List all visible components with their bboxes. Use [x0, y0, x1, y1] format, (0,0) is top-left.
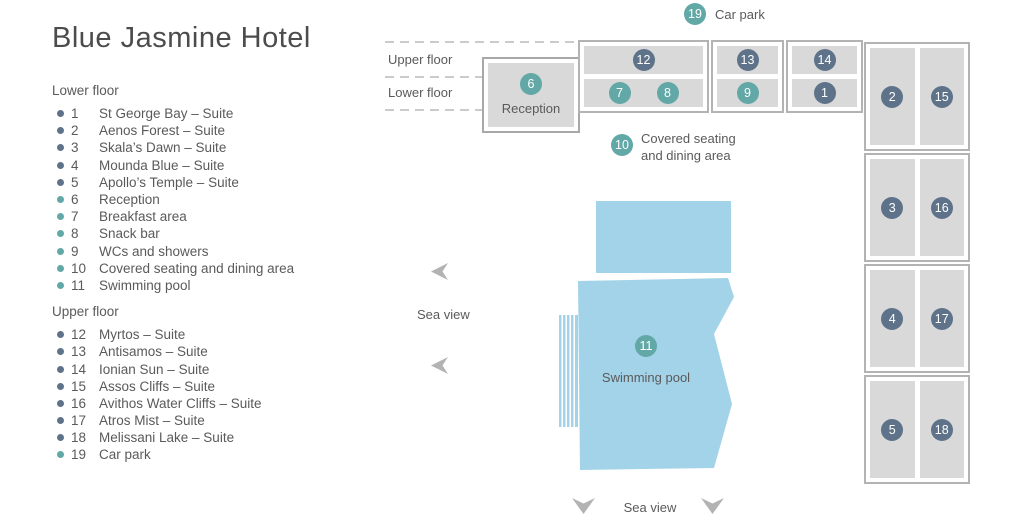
building-12-7-8: 12 7 8 — [578, 40, 709, 113]
page-title: Blue Jasmine Hotel — [52, 22, 352, 55]
building-left-cell: 4 — [870, 270, 915, 367]
floor-divider-dashes — [385, 109, 482, 111]
legend-item-number: 14 — [71, 362, 99, 377]
building-right-cell: 16 — [920, 159, 965, 256]
legend-item-number: 11 — [71, 278, 99, 293]
building-upper-cell: 13 — [717, 46, 778, 74]
building-right-cell: 15 — [920, 48, 965, 145]
bullet-icon — [57, 162, 64, 169]
legend-item: 8Snack bar — [52, 225, 352, 242]
legend-item-label: Skala’s Dawn – Suite — [99, 140, 226, 155]
unit-19-badge: 19 — [684, 3, 706, 25]
legend-item-label: Apollo’s Temple – Suite — [99, 175, 239, 190]
legend-item-number: 16 — [71, 396, 99, 411]
unit-15-badge: 15 — [931, 86, 953, 108]
building-lower-cell: 9 — [717, 79, 778, 107]
bullet-icon — [57, 144, 64, 151]
legend-item: 2Aenos Forest – Suite — [52, 122, 352, 139]
legend-item-number: 8 — [71, 226, 99, 241]
legend-item-label: Antisamos – Suite — [99, 344, 208, 359]
building-2-15: 2 15 — [864, 42, 970, 151]
legend-item-label: Atros Mist – Suite — [99, 413, 205, 428]
bullet-icon — [57, 348, 64, 355]
legend-item-label: Covered seating and dining area — [99, 261, 294, 276]
legend-item-number: 12 — [71, 327, 99, 342]
legend-item: 4Mounda Blue – Suite — [52, 157, 352, 174]
building-5-18: 5 18 — [864, 375, 970, 484]
legend-item: 18Melissani Lake – Suite — [52, 429, 352, 446]
legend-item: 11Swimming pool — [52, 277, 352, 294]
bullet-icon — [57, 417, 64, 424]
building-right-cell: 18 — [920, 381, 965, 478]
legend-item: 12Myrtos – Suite — [52, 326, 352, 343]
bullet-icon — [57, 282, 64, 289]
bullet-icon — [57, 127, 64, 134]
lower-floor-heading: Lower floor — [52, 82, 352, 99]
sea-view-bottom-label: Sea view — [624, 499, 677, 516]
bullet-icon — [57, 383, 64, 390]
building-upper-cell: 12 — [584, 46, 703, 74]
legend-item-number: 17 — [71, 413, 99, 428]
legend-item: 15Assos Cliffs – Suite — [52, 378, 352, 395]
legend-item: 19Car park — [52, 446, 352, 463]
unit-2-badge: 2 — [881, 86, 903, 108]
legend-item-number: 6 — [71, 192, 99, 207]
sea-view-arrow-left-icon — [431, 263, 448, 280]
reception-building: 6 Reception — [482, 57, 580, 133]
unit-1-badge: 1 — [814, 82, 836, 104]
unit-4-badge: 4 — [881, 308, 903, 330]
unit-17-badge: 17 — [931, 308, 953, 330]
building-upper-cell: 14 — [792, 46, 857, 74]
building-left-cell: 2 — [870, 48, 915, 145]
legend-item-label: Myrtos – Suite — [99, 327, 185, 342]
legend-item-number: 18 — [71, 430, 99, 445]
reception-label: Reception — [502, 100, 561, 117]
bullet-icon — [57, 213, 64, 220]
bullet-icon — [57, 331, 64, 338]
building-lower-cell: 1 — [792, 79, 857, 107]
unit-12-badge: 12 — [633, 49, 655, 71]
legend-upper-floor-section: Upper floor 12Myrtos – Suite 13Antisamos… — [52, 303, 352, 464]
unit-10-badge: 10 — [611, 134, 633, 156]
legend-item-label: Melissani Lake – Suite — [99, 430, 234, 445]
legend-item: 9WCs and showers — [52, 243, 352, 260]
legend-item-label: St George Bay – Suite — [99, 106, 233, 121]
legend-item-number: 1 — [71, 106, 99, 121]
legend-item-label: Ionian Sun – Suite — [99, 362, 209, 377]
lower-floor-map-label: Lower floor — [388, 84, 452, 101]
hotel-plan-page: Blue Jasmine Hotel Lower floor 1St Georg… — [0, 0, 1024, 520]
legend-item-number: 19 — [71, 447, 99, 462]
pool-steps-icon — [559, 315, 578, 427]
building-lower-cell: 7 8 — [584, 79, 703, 107]
legend-item: 17Atros Mist – Suite — [52, 412, 352, 429]
floor-divider-dashes — [385, 41, 578, 43]
reception-cell: 6 Reception — [488, 63, 574, 127]
legend-item-number: 4 — [71, 158, 99, 173]
legend-item: 6Reception — [52, 191, 352, 208]
legend-item-label: Aenos Forest – Suite — [99, 123, 225, 138]
building-14-1: 14 1 — [786, 40, 863, 113]
unit-8-badge: 8 — [657, 82, 679, 104]
legend-item: 7Breakfast area — [52, 208, 352, 225]
legend-item-label: WCs and showers — [99, 244, 209, 259]
bullet-icon — [57, 400, 64, 407]
unit-7-badge: 7 — [609, 82, 631, 104]
upper-floor-map-label: Upper floor — [388, 51, 452, 68]
unit-5-badge: 5 — [881, 419, 903, 441]
unit-14-badge: 14 — [814, 49, 836, 71]
upper-floor-heading: Upper floor — [52, 303, 352, 320]
bullet-icon — [57, 265, 64, 272]
covered-area-label-line1: Covered seating — [641, 130, 736, 147]
legend-item-label: Avithos Water Cliffs – Suite — [99, 396, 262, 411]
legend-item-label: Swimming pool — [99, 278, 191, 293]
legend-item-number: 15 — [71, 379, 99, 394]
bullet-icon — [57, 366, 64, 373]
bullet-icon — [57, 434, 64, 441]
legend-item: 3Skala’s Dawn – Suite — [52, 139, 352, 156]
sea-view-arrow-down-icon — [701, 498, 724, 514]
building-left-cell: 3 — [870, 159, 915, 256]
legend-item-label: Breakfast area — [99, 209, 187, 224]
bullet-icon — [57, 110, 64, 117]
legend-panel: Blue Jasmine Hotel Lower floor 1St Georg… — [52, 22, 352, 464]
bullet-icon — [57, 248, 64, 255]
car-park-label: Car park — [715, 6, 765, 23]
bullet-icon — [57, 196, 64, 203]
legend-item: 13Antisamos – Suite — [52, 343, 352, 360]
building-right-cell: 17 — [920, 270, 965, 367]
covered-area-label: Covered seating and dining area — [641, 130, 736, 164]
covered-area-label-line2: and dining area — [641, 147, 736, 164]
unit-18-badge: 18 — [931, 419, 953, 441]
legend-item-number: 13 — [71, 344, 99, 359]
sea-view-arrow-left-icon — [431, 357, 448, 374]
legend-item-label: Mounda Blue – Suite — [99, 158, 224, 173]
building-3-16: 3 16 — [864, 153, 970, 262]
legend-item-number: 5 — [71, 175, 99, 190]
legend-item-label: Reception — [99, 192, 160, 207]
unit-6-badge: 6 — [520, 73, 542, 95]
sea-view-arrow-down-icon — [572, 498, 595, 514]
legend-item: 16Avithos Water Cliffs – Suite — [52, 395, 352, 412]
unit-11-badge: 11 — [635, 335, 657, 357]
legend-item-number: 9 — [71, 244, 99, 259]
unit-9-badge: 9 — [737, 82, 759, 104]
legend-item-number: 3 — [71, 140, 99, 155]
legend-item: 14Ionian Sun – Suite — [52, 360, 352, 377]
building-13-9: 13 9 — [711, 40, 784, 113]
legend-item-label: Assos Cliffs – Suite — [99, 379, 215, 394]
legend-item-number: 10 — [71, 261, 99, 276]
bullet-icon — [57, 451, 64, 458]
legend-item: 10Covered seating and dining area — [52, 260, 352, 277]
legend-item: 1St George Bay – Suite — [52, 105, 352, 122]
legend-lower-floor-section: Lower floor 1St George Bay – Suite 2Aeno… — [52, 82, 352, 294]
pool-upper-basin — [596, 201, 731, 273]
floor-divider-dashes — [385, 76, 482, 78]
unit-13-badge: 13 — [737, 49, 759, 71]
legend-item-number: 2 — [71, 123, 99, 138]
building-left-cell: 5 — [870, 381, 915, 478]
bullet-icon — [57, 179, 64, 186]
swimming-pool-label: Swimming pool — [602, 369, 690, 386]
legend-item: 5Apollo’s Temple – Suite — [52, 174, 352, 191]
sea-view-left-label: Sea view — [417, 306, 470, 323]
legend-item-label: Snack bar — [99, 226, 160, 241]
building-4-17: 4 17 — [864, 264, 970, 373]
legend-item-number: 7 — [71, 209, 99, 224]
bullet-icon — [57, 230, 64, 237]
unit-3-badge: 3 — [881, 197, 903, 219]
legend-item-label: Car park — [99, 447, 151, 462]
unit-16-badge: 16 — [931, 197, 953, 219]
